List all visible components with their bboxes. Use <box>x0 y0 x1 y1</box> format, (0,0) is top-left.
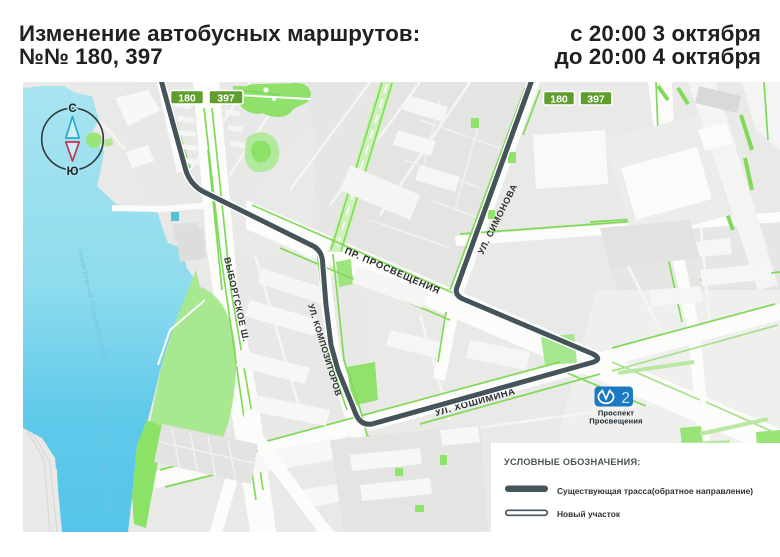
svg-text:397: 397 <box>217 92 235 104</box>
svg-text:2: 2 <box>621 390 630 407</box>
svg-text:397: 397 <box>587 93 605 105</box>
svg-text:Просвещения: Просвещения <box>589 417 643 426</box>
svg-text:Ю: Ю <box>67 166 79 178</box>
svg-text:180: 180 <box>178 92 196 104</box>
svg-text:180: 180 <box>550 93 568 105</box>
svg-text:С: С <box>68 103 76 115</box>
